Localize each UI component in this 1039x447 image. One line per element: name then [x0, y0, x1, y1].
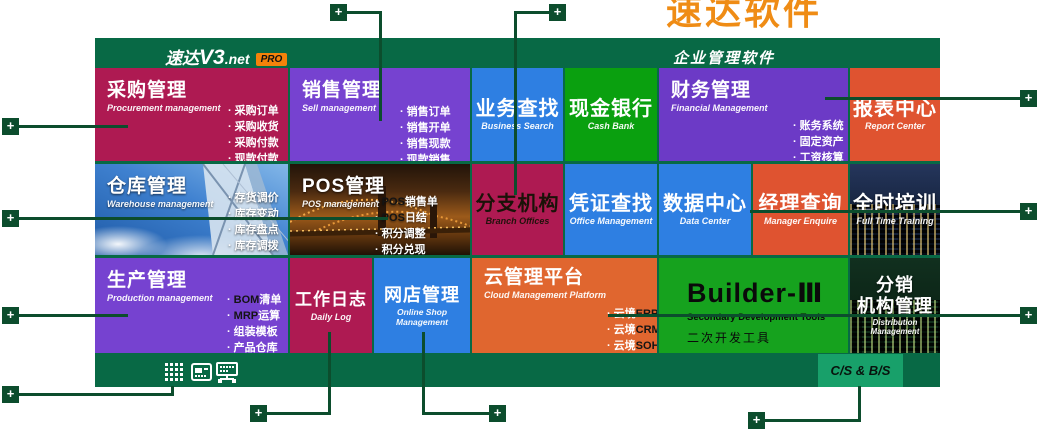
tile-pos[interactable]: POS管理 POS management ·POS销售单·POS日结·积分调整·… [290, 164, 470, 255]
bullet-text: CRM [636, 324, 657, 336]
callout-line [18, 393, 174, 396]
bullet-text: 云境 [614, 324, 636, 336]
bullet-dot: · [793, 136, 797, 148]
callout-line [750, 210, 1021, 213]
bullet-menu-item[interactable]: ·MRP运算 [227, 308, 281, 324]
callout-line [608, 314, 1021, 317]
tile-title: 采购管理 [107, 80, 221, 102]
bullet-dot: · [400, 138, 404, 150]
tile-report-center[interactable]: 报表中心 Report Center [850, 68, 940, 161]
tile-title: 网店管理 [384, 284, 460, 306]
tile-warehouse-head: 仓库管理 Warehouse management [107, 176, 213, 209]
bullet-menu-item[interactable]: ·产品仓库 [227, 340, 281, 353]
callout-line [422, 412, 489, 415]
tile-builder-head: Builder-Ⅲ Secondary Development Tools 二次… [687, 278, 825, 346]
bullet-text: 销售开单 [407, 122, 451, 134]
tile-title: 云管理平台 [484, 267, 606, 289]
bullet-text: 日结 [405, 212, 427, 224]
bullet-menu-item[interactable]: ·采购订单 [228, 103, 279, 119]
bullet-menu-item[interactable]: ·BOM清单 [227, 292, 281, 308]
tile-subtitle: Financial Management [671, 103, 768, 113]
callout-line [514, 11, 517, 195]
callout-line [18, 217, 388, 220]
tile-subtitle: POS management [302, 199, 385, 209]
bullet-text: 云境 [614, 340, 636, 352]
bullet-text: 现款付款 [235, 153, 279, 161]
pro-badge: PRO [256, 53, 288, 66]
tile-subtitle: Office Management [570, 216, 653, 226]
callout-plus-left-1[interactable]: + [2, 118, 19, 135]
page-background: 速达软件 速达V3.netPRO 企业管理软件 采购管理 Procurement… [0, 0, 1039, 447]
bullet-menu-item[interactable]: ·存货调价 [228, 190, 279, 206]
callout-line [18, 314, 128, 317]
callout-line [422, 332, 425, 415]
tile-title: 销售管理 [302, 80, 382, 102]
bullet-dot: · [375, 244, 379, 255]
tile-subtitle: Cash Bank [588, 121, 635, 131]
tile-daily-log[interactable]: 工作日志 Daily Log [290, 258, 372, 353]
tile-subtitle: Business Search [481, 121, 554, 131]
bullet-dot: · [793, 152, 797, 161]
bullet-dot: · [607, 324, 611, 336]
tile-title: 报表中心 [853, 98, 937, 120]
tile-distribution[interactable]: 分销 机构管理 Distribution Management [850, 258, 940, 353]
bullet-dot: · [400, 106, 404, 118]
bullet-text: 库存调拨 [235, 240, 279, 252]
callout-plus-bottom-1[interactable]: + [250, 405, 267, 422]
callout-line [267, 412, 331, 415]
tile-sales-head: 销售管理 Sell management [302, 80, 382, 113]
bullet-dot: · [375, 228, 379, 240]
bullet-dot: · [400, 154, 404, 161]
callout-line [379, 11, 382, 121]
bullet-text: 积分调整 [382, 228, 426, 240]
tile-cloud-head: 云管理平台 Cloud Management Platform [484, 267, 606, 300]
tile-title: POS管理 [302, 176, 385, 198]
bullet-text: 销售单 [405, 196, 438, 208]
tile-title: 财务管理 [671, 80, 768, 102]
bullet-text: 账务系统 [800, 120, 844, 132]
callout-plus-bottom-3[interactable]: + [748, 412, 765, 429]
tile-subtitle: Daily Log [311, 312, 352, 322]
report-window-icon[interactable] [191, 363, 212, 382]
tile-subtitle: Cloud Management Platform [484, 290, 606, 300]
callout-line [825, 97, 1021, 100]
callout-plus-right-3[interactable]: + [1020, 307, 1037, 324]
tile-subtitle: Production management [107, 293, 213, 303]
callout-line [347, 11, 381, 14]
brand-logo: 速达V3.netPRO [165, 44, 287, 70]
tile-title: 分支机构 [476, 193, 560, 215]
bullet-dot: · [375, 196, 379, 208]
bullet-text: 工资核算 [800, 152, 844, 161]
top-banner-text: 速达软件 [666, 0, 822, 35]
bullet-dot: · [227, 342, 231, 353]
brand-version: V3 [199, 46, 225, 69]
callout-plus-right-1[interactable]: + [1020, 90, 1037, 107]
bullet-dot: · [228, 224, 232, 236]
tile-voucher-search[interactable]: 凭证查找 Office Management [565, 164, 657, 255]
bullet-text: SOHO [636, 340, 657, 352]
tile-business-search[interactable]: 业务查找 Business Search [472, 68, 563, 161]
bullet-dot: · [793, 120, 797, 132]
bullet-menu-item[interactable]: ·账务系统 [793, 118, 844, 134]
bullet-text: 清单 [259, 294, 281, 306]
bullet-menu-item[interactable]: ·积分调整 [375, 226, 438, 242]
tile-procurement-bullets: ·采购订单·采购收货·采购付款·现款付款 [228, 103, 279, 161]
callout-plus-bottom-2[interactable]: + [489, 405, 506, 422]
tile-title: 仓库管理 [107, 176, 213, 198]
tile-finance-head: 财务管理 Financial Management [671, 80, 768, 113]
tile-subtitle: Sell management [302, 103, 382, 113]
bullet-text: 现款销售 [407, 154, 451, 161]
bullet-menu-item[interactable]: ·云境SOHO [607, 338, 657, 353]
callout-plus-right-2[interactable]: + [1020, 203, 1037, 220]
bullet-text: 存货调价 [235, 192, 279, 204]
bullet-dot: · [400, 122, 404, 134]
tile-finance-bullets: ·账务系统·固定资产·工资核算 [793, 118, 844, 161]
tile-branch-offices[interactable]: 分支机构 Branch Offices [472, 164, 563, 255]
app-grid-icon[interactable] [164, 362, 184, 382]
header-title: 企业管理软件 [673, 47, 775, 68]
callout-plus-top-1[interactable]: + [330, 4, 347, 21]
bullet-menu-item[interactable]: ·销售订单 [400, 104, 451, 120]
tile-production-bullets: ·BOM清单·MRP运算·组装模板·产品仓库 [227, 292, 281, 353]
bullet-text: 组装模板 [234, 326, 278, 338]
tile-title: Builder-Ⅲ [687, 278, 825, 309]
bullet-text: 库存盘点 [235, 224, 279, 236]
tile-subtitle: Warehouse management [107, 199, 213, 209]
bullet-menu-item[interactable]: ·POS销售单 [375, 194, 438, 210]
bullet-text: MRP [234, 310, 258, 322]
bullet-dot: · [228, 192, 232, 204]
bullet-menu-item[interactable]: ·采购收货 [228, 119, 279, 135]
callout-line [18, 125, 128, 128]
bullet-dot: · [228, 153, 232, 161]
tile-finance[interactable]: 财务管理 Financial Management ·账务系统·固定资产·工资核… [659, 68, 848, 161]
callout-plus-left-4[interactable]: + [2, 386, 19, 403]
tile-pos-head: POS管理 POS management [302, 176, 385, 209]
bullet-text: 采购订单 [235, 105, 279, 117]
tile-procurement-head: 采购管理 Procurement management [107, 80, 221, 113]
callout-line [858, 386, 861, 422]
tile-subtitle: Distribution Management [850, 318, 940, 336]
bullet-dot: · [227, 326, 231, 338]
bullet-text: 销售现款 [407, 138, 451, 150]
tile-pos-bullets: ·POS销售单·POS日结·积分调整·积分兑现 [375, 194, 438, 255]
bullet-text: 积分兑现 [382, 244, 426, 255]
bullet-menu-item[interactable]: ·库存调拨 [228, 238, 279, 254]
bullet-menu-item[interactable]: ·云境CRM [607, 322, 657, 338]
bullet-text: 运算 [258, 310, 280, 322]
tile-title: 工作日志 [295, 289, 367, 311]
bullet-text: 销售订单 [407, 106, 451, 118]
bullet-menu-item[interactable]: ·固定资产 [793, 134, 844, 150]
tile-title: 数据中心 [663, 193, 747, 215]
bullet-text: 采购付款 [235, 137, 279, 149]
tile-subtitle: Online Shop Management [374, 307, 470, 327]
callout-line [515, 11, 551, 14]
callout-line [328, 332, 331, 415]
tile-subtitle: Data Center [680, 216, 731, 226]
tile-title: 凭证查找 [569, 193, 653, 215]
brand-cn: 速达 [165, 49, 199, 68]
tile-builder[interactable]: Builder-Ⅲ Secondary Development Tools 二次… [659, 258, 848, 353]
tile-production-head: 生产管理 Production management [107, 270, 213, 303]
bullet-text: BOM [234, 294, 260, 306]
bullet-dot: · [228, 105, 232, 117]
tile-cloud-platform[interactable]: 云管理平台 Cloud Management Platform ·云境ERP·云… [472, 258, 657, 353]
bullet-text: 固定资产 [800, 136, 844, 148]
bullet-menu-item[interactable]: ·现款销售 [400, 152, 451, 161]
bullet-text: 采购收货 [235, 121, 279, 133]
bullet-menu-item[interactable]: ·库存盘点 [228, 222, 279, 238]
tile-procurement[interactable]: 采购管理 Procurement management ·采购订单·采购收货·采… [95, 68, 288, 161]
tile-subtitle: Branch Offices [486, 216, 550, 226]
bullet-menu-item[interactable]: ·现款付款 [228, 151, 279, 161]
tile-cash-bank[interactable]: 现金银行 Cash Bank [565, 68, 657, 161]
bullet-menu-item[interactable]: ·采购付款 [228, 135, 279, 151]
bullet-dot: · [228, 137, 232, 149]
tile-subtitle: Manager Enquire [764, 216, 837, 226]
tile-title-line1: 分销 [876, 275, 914, 296]
tile-warehouse[interactable]: 仓库管理 Warehouse management ·存货调价·库存变动·库存盘… [95, 164, 288, 255]
bullet-text: 产品仓库 [234, 342, 278, 353]
tile-subtitle: Report Center [865, 121, 925, 131]
bullet-text: POS [382, 196, 405, 208]
callout-line [765, 419, 861, 422]
tile-subtitle: Procurement management [107, 103, 221, 113]
bullet-menu-item[interactable]: ·销售现款 [400, 136, 451, 152]
bullet-dot: · [228, 240, 232, 252]
tile-title: 业务查找 [476, 98, 560, 120]
bullet-dot: · [227, 310, 231, 322]
callout-line [171, 386, 174, 394]
tile-caption: 二次开发工具 [687, 329, 825, 346]
bullet-menu-item[interactable]: ·工资核算 [793, 150, 844, 161]
callout-plus-left-3[interactable]: + [2, 307, 19, 324]
bullet-dot: · [227, 294, 231, 306]
tile-subtitle: Full Time Training [856, 216, 933, 226]
cs-bs-badge[interactable]: C/S & B/S [818, 354, 903, 387]
brand-suffix: .net [225, 51, 250, 67]
tile-title: 现金银行 [569, 98, 653, 120]
bullet-dot: · [607, 340, 611, 352]
tile-title: 生产管理 [107, 270, 213, 292]
bullet-menu-item[interactable]: ·积分兑现 [375, 242, 438, 255]
tile-production[interactable]: 生产管理 Production management ·BOM清单·MRP运算·… [95, 258, 288, 353]
bullet-menu-item[interactable]: ·组装模板 [227, 324, 281, 340]
network-monitor-icon[interactable] [215, 362, 239, 383]
callout-plus-left-2[interactable]: + [2, 210, 19, 227]
tile-warehouse-bullets: ·存货调价·库存变动·库存盘点·库存调拨 [228, 190, 279, 254]
bullet-dot: · [228, 121, 232, 133]
bullet-menu-item[interactable]: ·销售开单 [400, 120, 451, 136]
callout-plus-top-2[interactable]: + [549, 4, 566, 21]
tile-sales-bullets: ·销售订单·销售开单·销售现款·现款销售 [400, 104, 451, 161]
tile-data-center[interactable]: 数据中心 Data Center [659, 164, 751, 255]
